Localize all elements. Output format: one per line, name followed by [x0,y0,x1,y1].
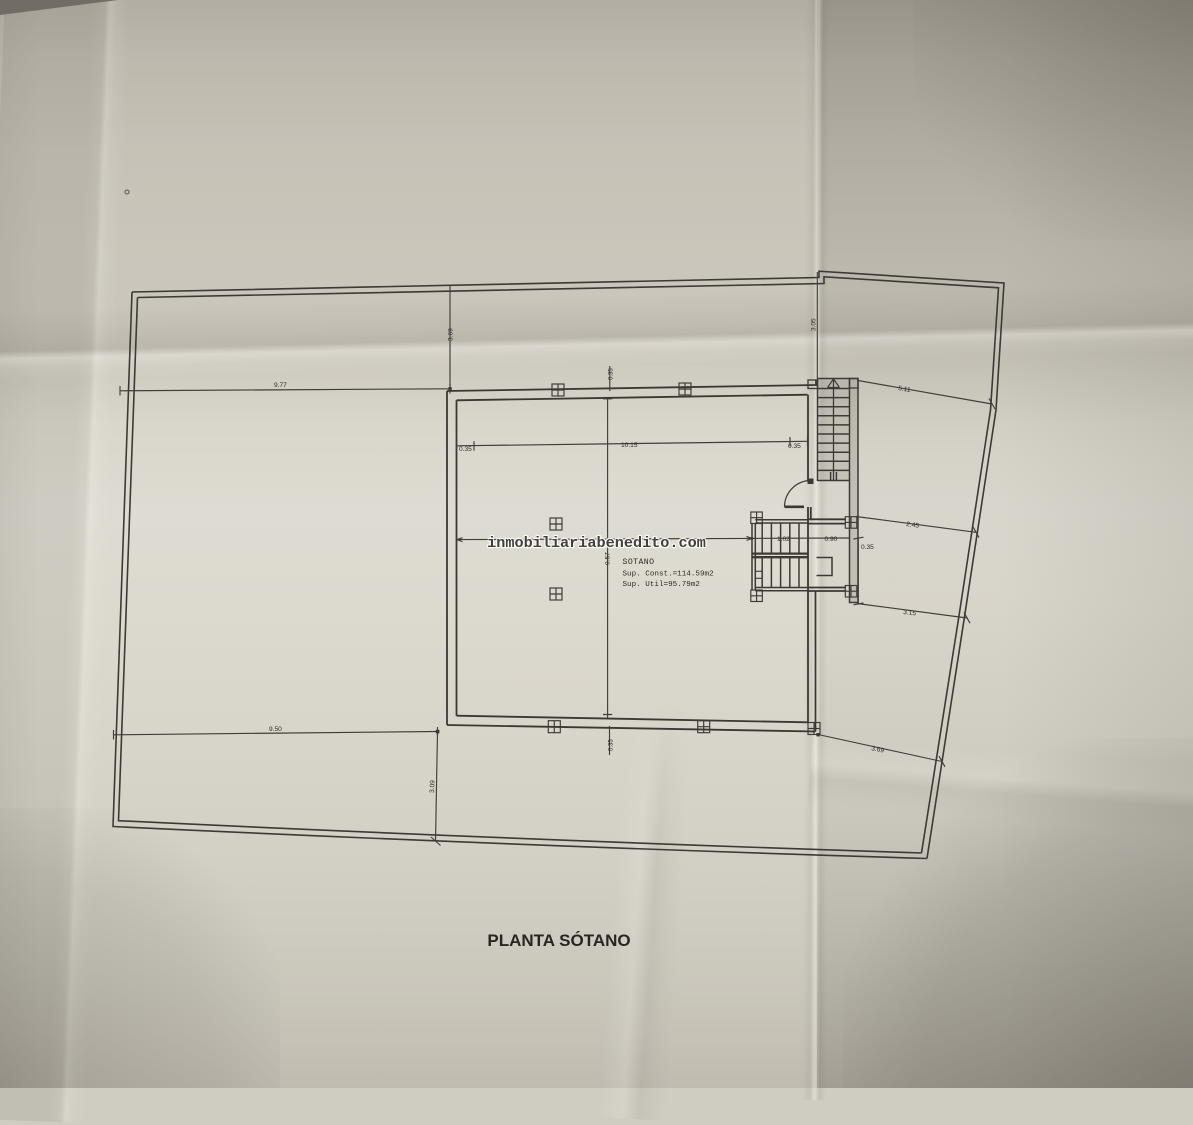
svg-text:Sup. Const.=114.59m2: Sup. Const.=114.59m2 [623,571,715,579]
svg-text:9.50: 9.50 [269,726,282,733]
svg-text:0.35: 0.35 [788,443,801,450]
svg-text:SOTANO: SOTANO [623,558,655,567]
svg-text:9.57: 9.57 [605,552,612,565]
svg-text:3.69: 3.69 [448,328,455,341]
svg-text:10.15: 10.15 [621,442,638,449]
svg-text:0.35: 0.35 [609,368,615,380]
svg-text:3.05: 3.05 [811,318,818,331]
svg-text:3.69: 3.69 [871,745,885,755]
svg-text:3.15: 3.15 [903,609,917,617]
svg-text:3.09: 3.09 [429,780,436,793]
svg-text:0.35: 0.35 [609,739,615,751]
svg-text:2.45: 2.45 [906,521,920,530]
svg-text:0.35: 0.35 [459,446,472,453]
svg-text:Sup. Util=95.79m2: Sup. Util=95.79m2 [623,581,701,589]
svg-text:9.77: 9.77 [274,382,287,389]
svg-text:5.11: 5.11 [898,385,912,394]
